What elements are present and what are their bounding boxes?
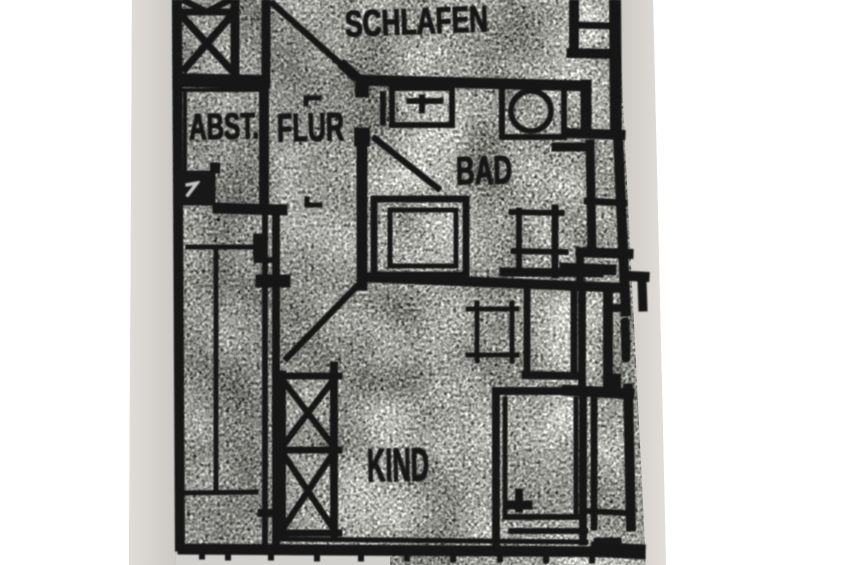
svg-text:BAD: BAD [456, 148, 513, 193]
svg-text:KIND: KIND [366, 437, 429, 491]
svg-text:ABST.: ABST. [189, 105, 260, 147]
svg-text:SCHLAFEN: SCHLAFEN [344, 0, 488, 45]
svg-text:FLUR: FLUR [277, 105, 345, 150]
